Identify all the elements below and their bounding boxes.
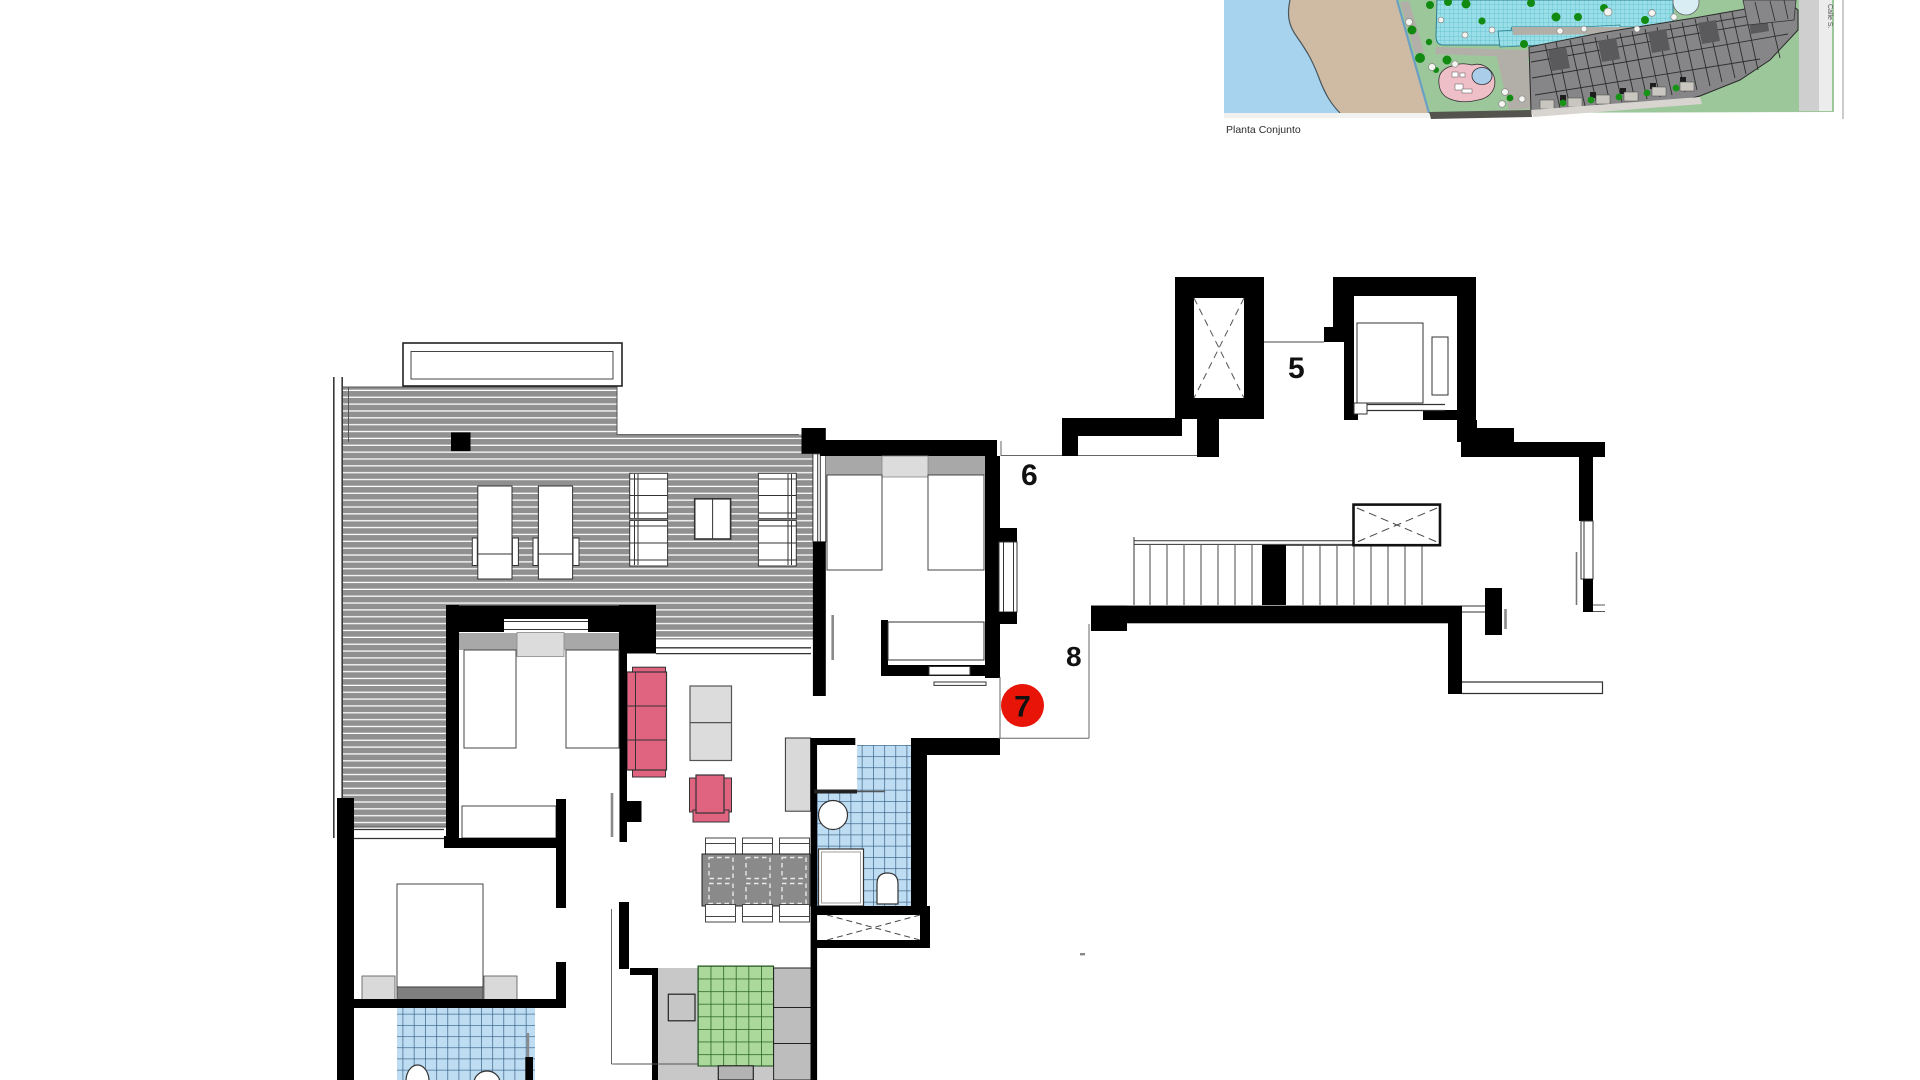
svg-text:6: 6 [1021, 459, 1038, 492]
svg-text:Planta Conjunto: Planta Conjunto [1226, 124, 1301, 136]
svg-text:7: 7 [1014, 691, 1031, 724]
svg-text:5: 5 [1288, 352, 1305, 385]
svg-text:8: 8 [1066, 641, 1082, 672]
svg-text:Calle S.: Calle S. [1826, 4, 1833, 29]
